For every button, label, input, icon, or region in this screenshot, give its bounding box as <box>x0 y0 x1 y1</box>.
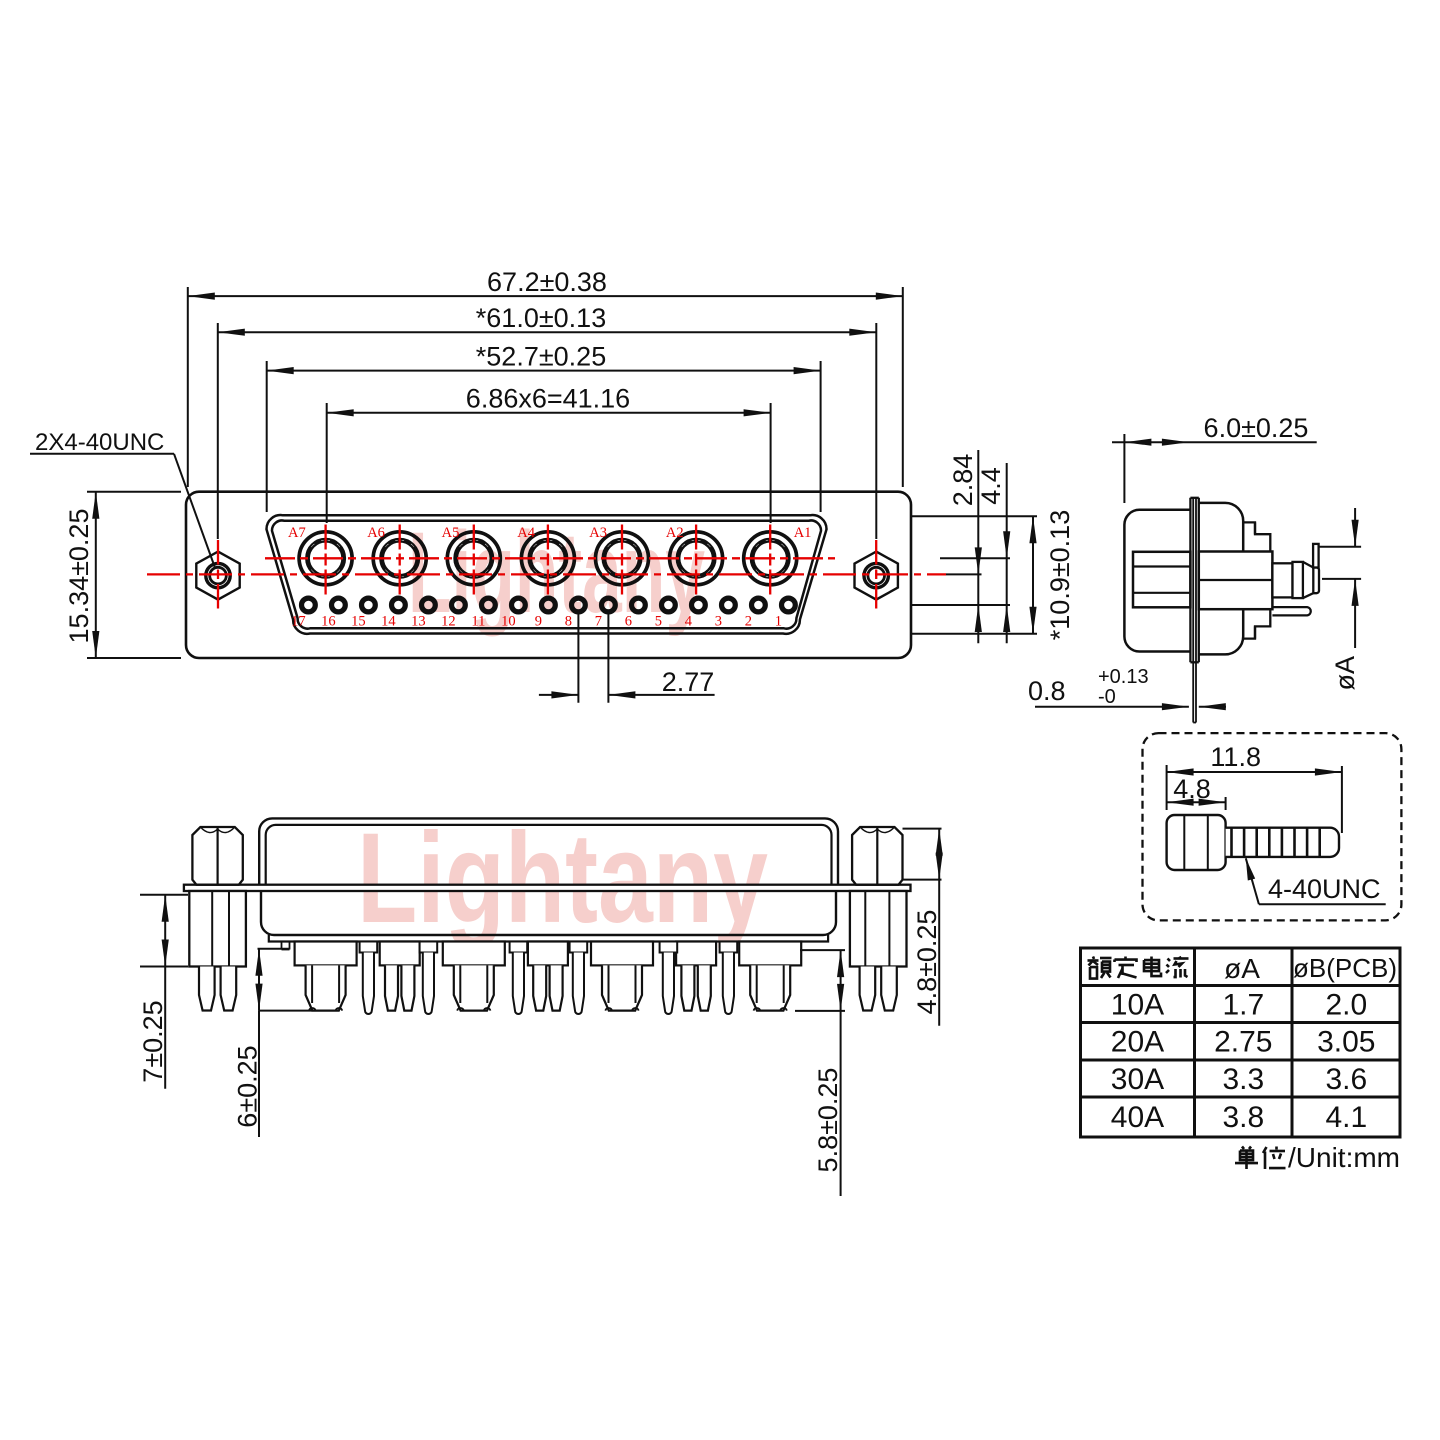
svg-text:A7: A7 <box>288 525 306 541</box>
svg-text:10A: 10A <box>1111 989 1164 1022</box>
svg-text:15.34±0.25: 15.34±0.25 <box>64 509 94 644</box>
svg-text:7: 7 <box>595 614 602 630</box>
svg-text:*10.9±0.13: *10.9±0.13 <box>1045 510 1075 640</box>
svg-text:20A: 20A <box>1111 1026 1164 1059</box>
svg-text:11: 11 <box>471 614 485 630</box>
svg-text:øA: øA <box>1330 656 1360 691</box>
svg-text:A3: A3 <box>589 525 607 541</box>
svg-text:3.3: 3.3 <box>1222 1063 1264 1096</box>
svg-text:A1: A1 <box>794 525 812 541</box>
svg-text:13: 13 <box>411 614 426 630</box>
svg-text:16: 16 <box>321 614 336 630</box>
svg-text:Lightany: Lightany <box>357 807 768 950</box>
svg-text:6±0.25: 6±0.25 <box>233 1045 263 1127</box>
svg-text:11.8: 11.8 <box>1210 742 1261 772</box>
svg-text:1: 1 <box>775 614 782 630</box>
svg-text:4.8±0.25: 4.8±0.25 <box>912 910 942 1015</box>
svg-text:øA: øA <box>1224 953 1260 984</box>
svg-text:12: 12 <box>441 614 456 630</box>
svg-text:3.8: 3.8 <box>1222 1101 1264 1134</box>
svg-text:14: 14 <box>381 614 396 630</box>
svg-text:6.0±0.25: 6.0±0.25 <box>1204 413 1309 443</box>
svg-text:2.84: 2.84 <box>948 454 978 507</box>
svg-text:4.1: 4.1 <box>1325 1101 1367 1134</box>
svg-text:A5: A5 <box>442 525 460 541</box>
svg-text:2.0: 2.0 <box>1325 989 1367 1022</box>
svg-text:A6: A6 <box>367 525 385 541</box>
svg-text:67.2±0.38: 67.2±0.38 <box>487 267 607 297</box>
svg-text:/Unit:mm: /Unit:mm <box>1288 1142 1400 1173</box>
svg-text:2X4-40UNC: 2X4-40UNC <box>35 429 164 456</box>
svg-text:4: 4 <box>685 614 693 630</box>
svg-text:2.75: 2.75 <box>1214 1026 1272 1059</box>
svg-text:8: 8 <box>565 614 572 630</box>
svg-text:6: 6 <box>625 614 632 630</box>
svg-text:*61.0±0.13: *61.0±0.13 <box>476 303 606 333</box>
svg-text:0.8: 0.8 <box>1028 676 1066 706</box>
svg-text:30A: 30A <box>1111 1063 1164 1096</box>
svg-text:40A: 40A <box>1111 1101 1164 1134</box>
svg-text:3: 3 <box>715 614 722 630</box>
svg-text:5.8±0.25: 5.8±0.25 <box>813 1068 843 1173</box>
svg-text:2: 2 <box>745 614 752 630</box>
svg-text:15: 15 <box>351 614 366 630</box>
svg-text:A2: A2 <box>666 525 684 541</box>
svg-text:17: 17 <box>291 614 306 630</box>
svg-text:4.4: 4.4 <box>976 467 1006 505</box>
svg-text:5: 5 <box>655 614 662 630</box>
svg-text:9: 9 <box>535 614 542 630</box>
svg-text:7±0.25: 7±0.25 <box>138 1000 168 1082</box>
svg-text:øB(PCB): øB(PCB) <box>1293 953 1397 983</box>
svg-text:4.8: 4.8 <box>1173 774 1211 804</box>
svg-text:4-40UNC: 4-40UNC <box>1268 874 1381 904</box>
svg-text:10: 10 <box>501 614 516 630</box>
svg-text:*52.7±0.25: *52.7±0.25 <box>476 342 606 372</box>
svg-text:2.77: 2.77 <box>662 667 715 697</box>
svg-text:+0.13: +0.13 <box>1098 666 1149 688</box>
svg-text:6.86x6=41.16: 6.86x6=41.16 <box>466 384 630 414</box>
svg-text:1.7: 1.7 <box>1222 989 1264 1022</box>
svg-text:A4: A4 <box>517 525 535 541</box>
svg-text:3.6: 3.6 <box>1325 1063 1367 1096</box>
svg-text:3.05: 3.05 <box>1317 1026 1375 1059</box>
svg-text:-0: -0 <box>1098 686 1116 708</box>
